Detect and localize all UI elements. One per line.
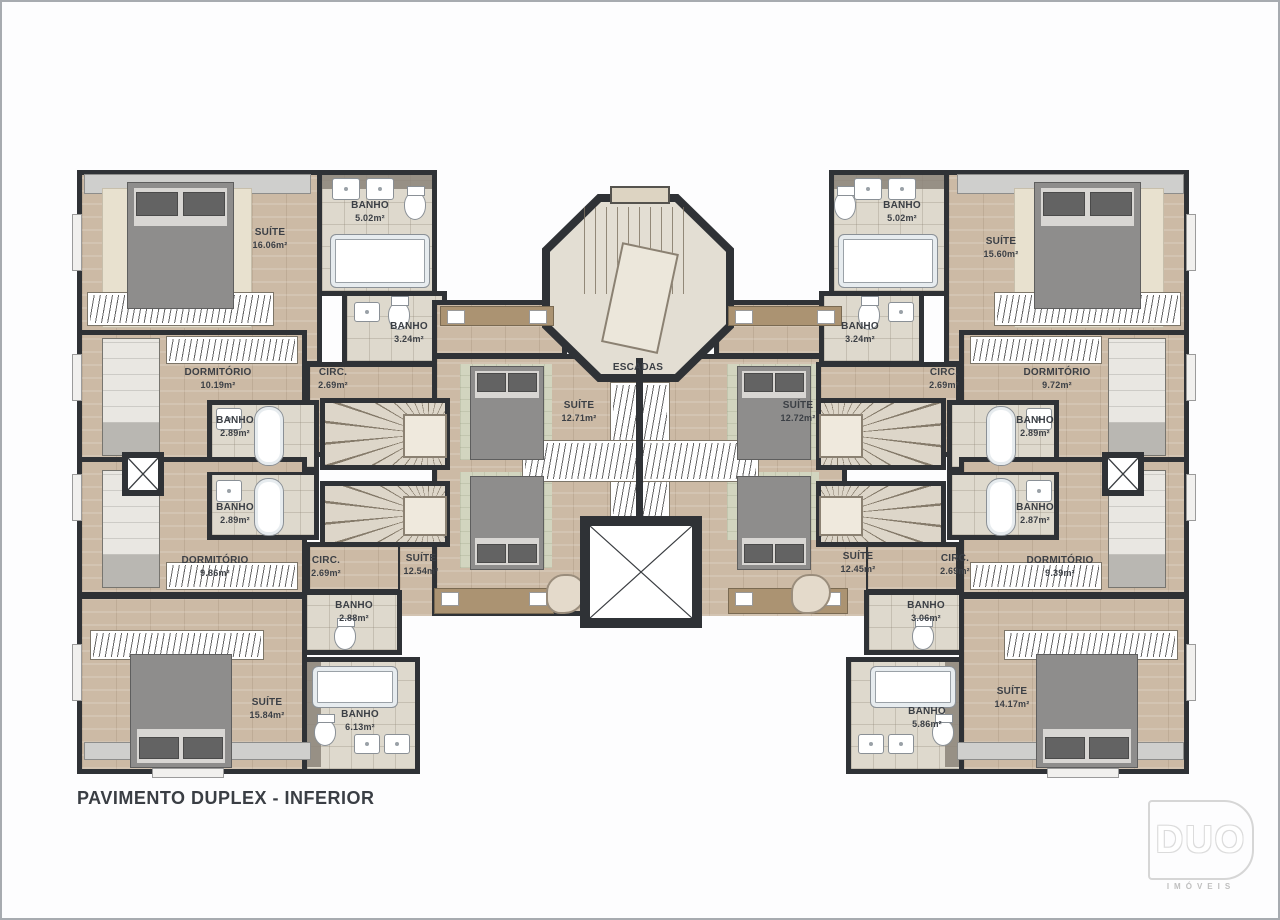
sink [888,734,914,754]
floor-plan-page: SUÍTE16.06m² BANHO5.02m² BANHO3.24m² DOR… [0,0,1280,920]
label-suite-1560: SUÍTE15.60m² [984,236,1019,260]
label-circ-left-upper: CIRC.2.69m² [318,367,348,391]
label-suite-1417: SUÍTE14.17m² [995,686,1030,710]
window [72,354,82,401]
staircase-left-lower [320,481,450,547]
label-banho-289-left-lower: BANHO2.89m² [216,502,254,526]
oval-tub [254,406,284,466]
label-circ-left-lower: CIRC.2.69m² [311,555,341,579]
label-escadas: ESCADAS [613,362,663,375]
window [72,474,82,521]
label-dormitorio-1019: DORMITÓRIO10.19m² [185,367,252,391]
staircase-left-upper [320,398,450,470]
staircase-right-upper [816,398,946,470]
vanity-desk [434,588,554,614]
sink [888,302,914,322]
label-banho-288: BANHO2.88m² [335,600,373,624]
toilet [834,192,856,220]
sink [332,178,360,200]
toilet [314,720,336,746]
closet-rack [166,336,298,364]
bathtub [838,234,938,288]
duo-logo-tagline: IMÓVEIS [1148,882,1254,891]
party-wall [636,358,643,518]
stair-landing [819,496,864,536]
label-suite-1271: SUÍTE12.71m² [562,400,597,424]
stair-landing [819,414,864,458]
toilet [404,192,426,220]
sink [1026,480,1052,502]
label-circ-right-lower: CIRC.2.69m² [940,553,970,577]
window [1047,768,1119,778]
closet-rack [970,336,1102,364]
label-banho-287-right: BANHO2.87m² [1016,502,1054,526]
window [1186,474,1196,521]
window [1186,644,1196,701]
window [72,644,82,701]
double-bed [470,476,544,570]
elevator-shaft [580,516,702,628]
label-suite-1272: SUÍTE12.72m² [781,400,816,424]
label-banho-613: BANHO6.13m² [341,709,379,733]
duct-shaft [1102,452,1144,496]
label-banho-289-left-upper: BANHO2.89m² [216,415,254,439]
toilet [334,624,356,650]
sink [888,178,916,200]
label-circ-right-upper: CIRC.2.69m² [929,367,959,391]
label-banho-502-right: BANHO5.02m² [883,200,921,224]
sink [354,734,380,754]
floor-plan: SUÍTE16.06m² BANHO5.02m² BANHO3.24m² DOR… [2,2,1278,918]
bathtub [870,666,956,708]
label-suite-1245: SUÍTE12.45m² [841,551,876,575]
double-bed [127,182,234,309]
oval-tub [986,406,1016,466]
duo-logo: DUO [1148,800,1254,880]
double-bed [1034,182,1141,309]
label-dormitorio-986: DORMITÓRIO9.86m² [182,555,249,579]
duo-logo-text: DUO [1156,819,1246,862]
label-banho-289-right-upper: BANHO2.89m² [1016,415,1054,439]
plan-title: PAVIMENTO DUPLEX - INFERIOR [77,788,375,809]
sink [858,734,884,754]
sink [216,480,242,502]
double-bed [737,476,811,570]
sink [366,178,394,200]
toilet [912,624,934,650]
duct-shaft [122,452,164,496]
oval-tub [254,478,284,536]
oval-tub [986,478,1016,536]
console-table [440,306,554,326]
label-banho-306: BANHO3.06m² [907,600,945,624]
staircase-right-lower [816,481,946,547]
label-banho-502-left: BANHO5.02m² [351,200,389,224]
double-bed [130,654,232,768]
sink [854,178,882,200]
stair-landing [403,496,448,536]
window [1186,354,1196,401]
label-suite-16: SUÍTE16.06m² [253,227,288,251]
stair-core-octagon [542,194,734,382]
label-dormitorio-972: DORMITÓRIO9.72m² [1024,367,1091,391]
bathtub [330,234,430,288]
double-bed [1036,654,1138,768]
console-table [728,306,842,326]
label-suite-1584: SUÍTE15.84m² [250,697,285,721]
single-bed [102,338,160,456]
window [152,768,224,778]
stair-landing [403,414,448,458]
label-suite-1254: SUÍTE12.54m² [404,553,439,577]
single-bed [1108,338,1166,456]
window [1186,214,1196,271]
label-dormitorio-939: DORMITÓRIO9.39m² [1027,555,1094,579]
double-bed [470,366,544,460]
sink [384,734,410,754]
window [72,214,82,271]
label-banho-324-left: BANHO3.24m² [390,321,428,345]
label-banho-586: BANHO5.86m² [908,706,946,730]
stair-entry-landing [610,186,670,204]
label-banho-324-right: BANHO3.24m² [841,321,879,345]
bathtub [312,666,398,708]
sink [354,302,380,322]
